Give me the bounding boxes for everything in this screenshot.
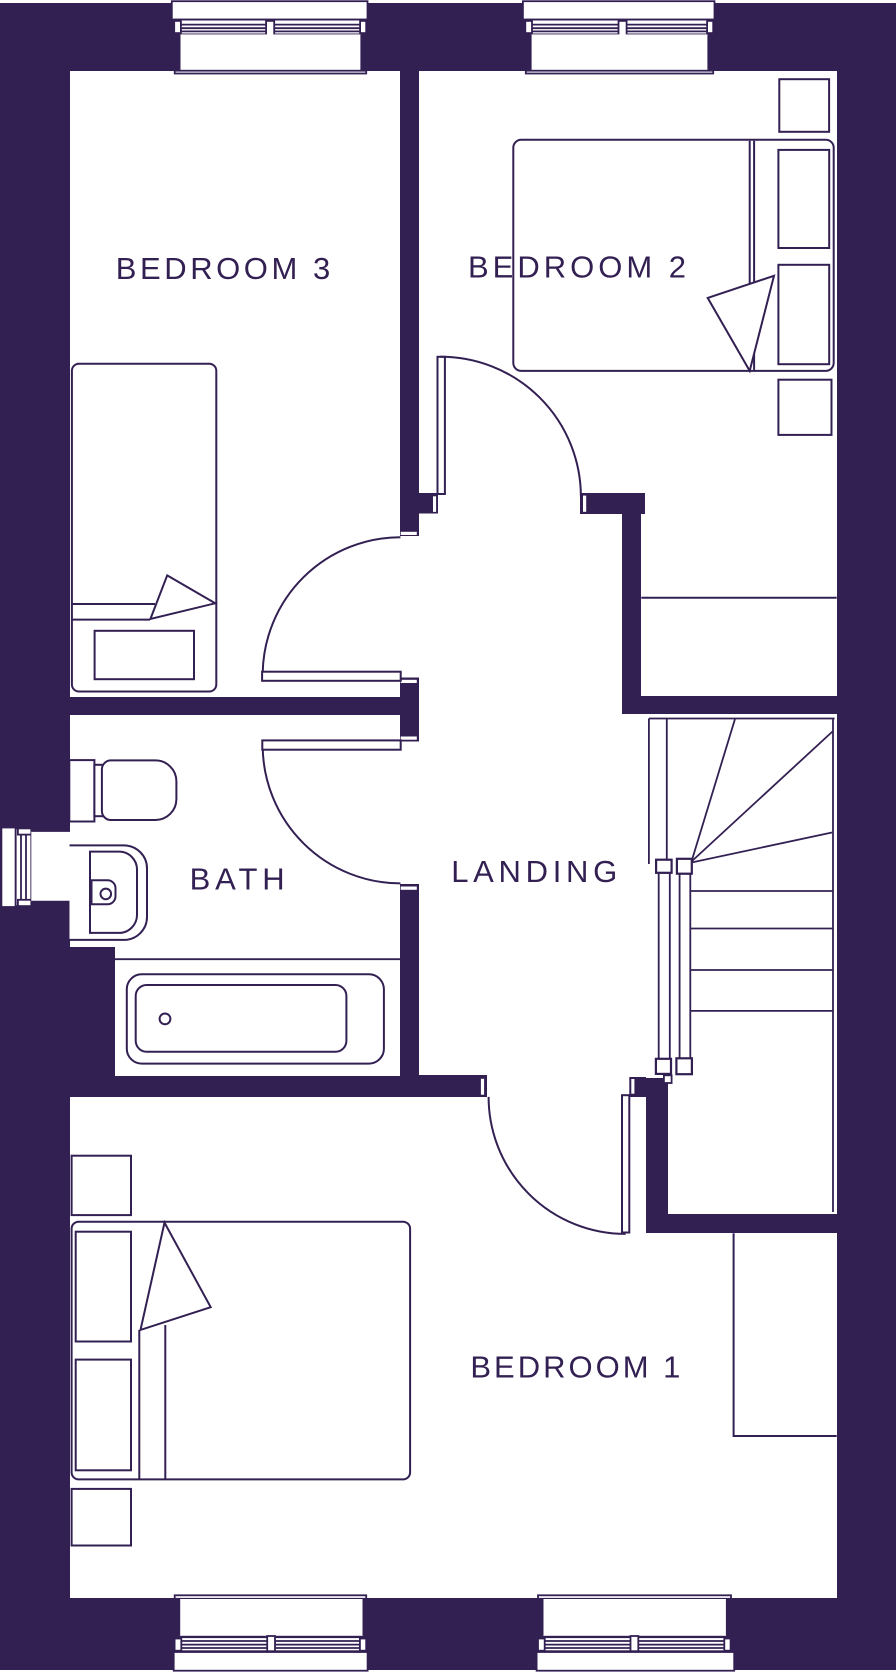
- svg-text:BATH: BATH: [190, 862, 290, 897]
- svg-text:BEDROOM 3: BEDROOM 3: [116, 251, 334, 286]
- svg-text:BEDROOM 1: BEDROOM 1: [470, 1350, 683, 1385]
- svg-text:BEDROOM 2: BEDROOM 2: [468, 250, 690, 285]
- svg-text:LANDING: LANDING: [451, 854, 622, 889]
